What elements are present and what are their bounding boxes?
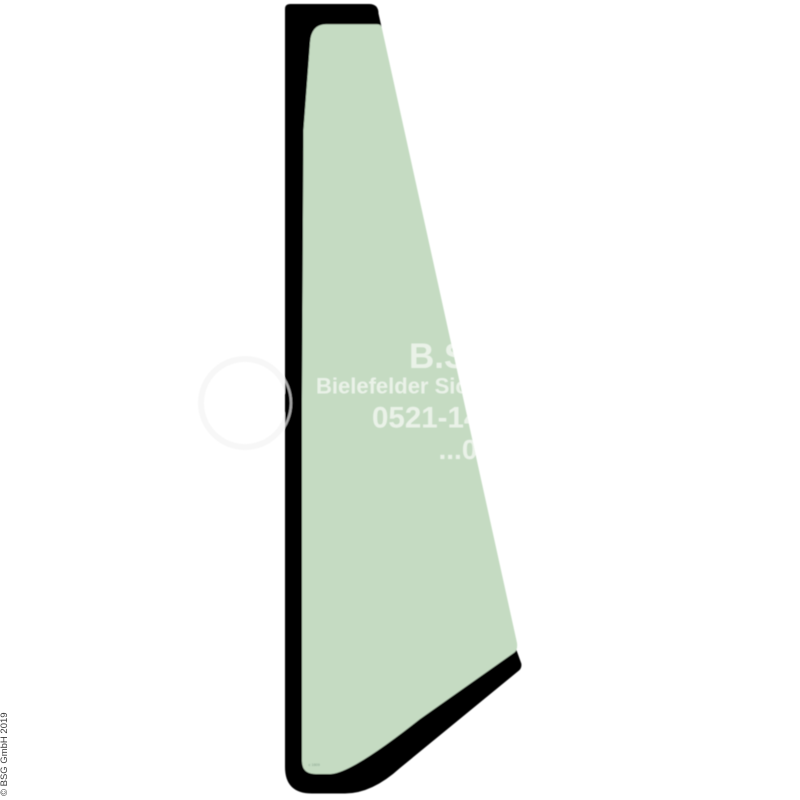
svg-text:...0521: ...0521 [439, 434, 525, 465]
svg-text:0521-140490: 0521-140490 [372, 402, 546, 435]
svg-text:c 1609: c 1609 [309, 763, 320, 767]
svg-text:B.S.G.: B.S.G. [409, 337, 514, 376]
svg-text:Bielefelder Sicherheitsglas: Bielefelder Sicherheitsglas [316, 374, 597, 399]
